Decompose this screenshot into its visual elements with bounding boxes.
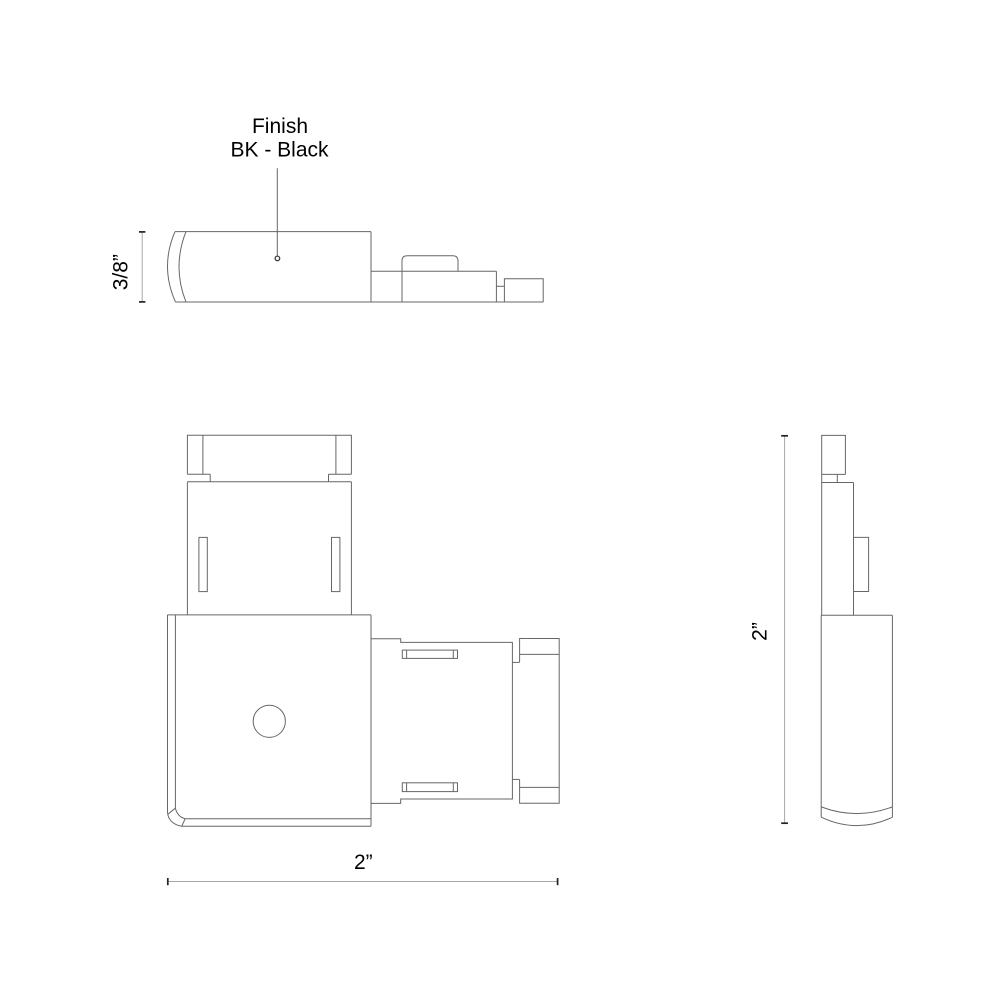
svg-text:2”: 2”	[354, 851, 373, 874]
svg-text:Finish: Finish	[252, 115, 308, 138]
svg-text:3/8”: 3/8”	[110, 254, 133, 290]
svg-text:2”: 2”	[749, 622, 772, 641]
svg-text:BK - Black: BK - Black	[230, 138, 329, 161]
